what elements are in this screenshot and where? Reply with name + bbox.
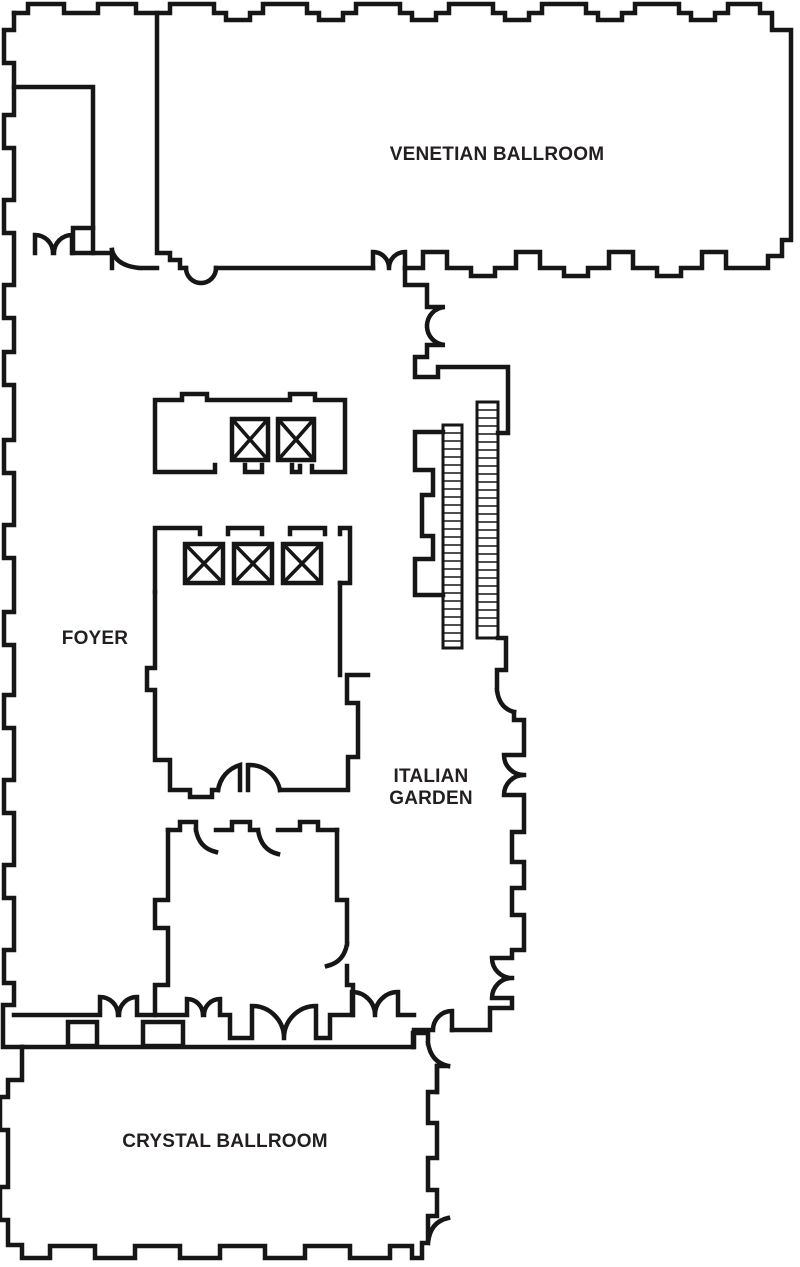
middle-room-a — [147, 583, 368, 797]
elevator-bank-2 — [155, 528, 350, 592]
room-a-double-door — [218, 765, 280, 790]
elevator-shaft-icon — [234, 544, 272, 583]
garden-south-door — [414, 1011, 452, 1047]
elevator-shaft-icon — [283, 544, 321, 583]
elevator-shaft-icon — [232, 419, 268, 460]
label-italian-garden-line1: ITALIAN — [394, 766, 469, 787]
floor-plan: VENETIAN BALLROOM FOYER ITALIAN GARDEN C… — [0, 0, 800, 1267]
garden-nw-junction — [405, 268, 508, 433]
elevator-shaft-icon — [278, 419, 314, 460]
middle-room-b — [155, 822, 353, 1015]
ballroom-top-right-wall — [14, 4, 791, 276]
stair-treads — [477, 410, 498, 626]
room-a-east-wall — [280, 583, 368, 790]
floor-plan-svg: VENETIAN BALLROOM FOYER ITALIAN GARDEN C… — [0, 0, 800, 1267]
room-b-top-wall — [168, 822, 337, 854]
single-door-arc — [112, 250, 157, 268]
elevator-bank-1 — [155, 394, 345, 472]
room-labels: VENETIAN BALLROOM FOYER ITALIAN GARDEN C… — [62, 144, 604, 1152]
inner-room-walls — [14, 87, 112, 253]
west-outer-wall — [3, 13, 22, 1047]
wall-pier — [68, 1022, 97, 1046]
vestibule-row — [14, 992, 414, 1046]
room-b-west-wall — [155, 830, 168, 1015]
elevator-shaft-icon — [185, 544, 223, 583]
label-italian-garden-line2: GARDEN — [389, 788, 473, 809]
foyer-top-door-arcs — [186, 268, 216, 283]
room-b-east-wall — [327, 830, 353, 1015]
wall-pier — [73, 228, 93, 253]
label-venetian-ballroom: VENETIAN BALLROOM — [390, 144, 605, 165]
stair-bottom-wall — [497, 638, 514, 712]
wall-pier — [143, 1022, 183, 1046]
inner-room-door-arcs — [35, 235, 72, 253]
label-foyer: FOYER — [62, 628, 129, 649]
garden-east-wall — [452, 712, 524, 1030]
ballroom-south-door-arcs — [373, 252, 405, 268]
staircase — [405, 268, 514, 712]
crystal-outline — [0, 1047, 448, 1258]
foyer-bottom-wall — [14, 992, 414, 1038]
stair-west-zigzag-wall — [415, 432, 443, 595]
upper-left-room — [14, 87, 157, 268]
foyer-west-wall — [3, 13, 22, 1047]
stair-treads — [443, 433, 462, 641]
room-a-west-wall — [147, 592, 218, 797]
ballroom-west-wall — [157, 13, 373, 268]
italian-garden-walls — [414, 712, 524, 1047]
label-crystal-ballroom: CRYSTAL BALLROOM — [122, 1131, 328, 1152]
crystal-ne-door — [413, 1033, 448, 1092]
